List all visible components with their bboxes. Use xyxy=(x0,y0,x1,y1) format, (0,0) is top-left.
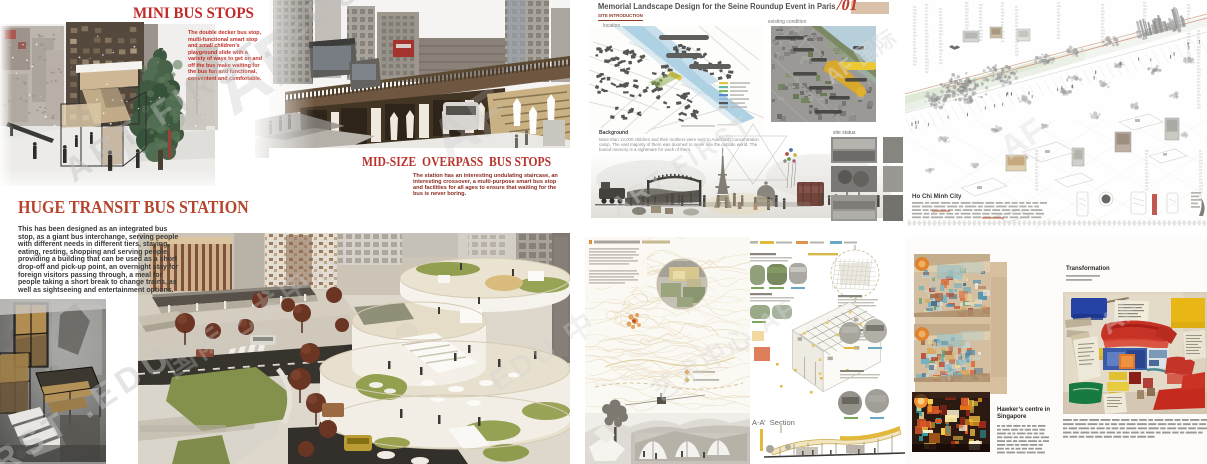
svg-text:A-A’ Section: A-A’ Section xyxy=(752,418,795,427)
